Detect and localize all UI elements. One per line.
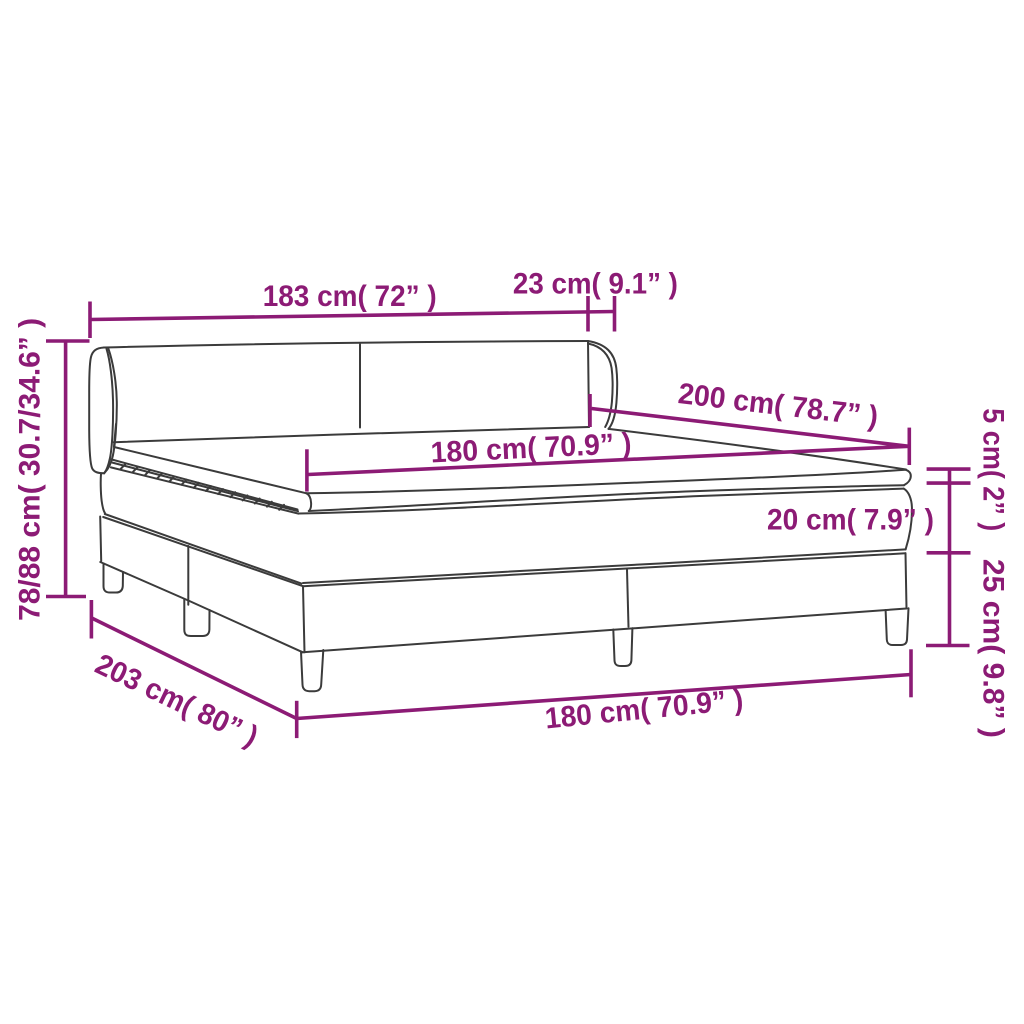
- svg-text:180 cm( 70.9” ): 180 cm( 70.9” ): [543, 683, 744, 735]
- svg-text:5 cm( 2” ): 5 cm( 2” ): [977, 408, 1010, 531]
- svg-text:183 cm( 72” ): 183 cm( 72” ): [263, 280, 437, 313]
- svg-text:20 cm( 7.9” ): 20 cm( 7.9” ): [767, 504, 934, 537]
- svg-text:200 cm( 78.7” ): 200 cm( 78.7” ): [676, 377, 879, 433]
- svg-text:78/88 cm( 30.7/34.6” ): 78/88 cm( 30.7/34.6” ): [14, 318, 47, 621]
- svg-text:23 cm( 9.1” ): 23 cm( 9.1” ): [513, 268, 678, 301]
- svg-text:180 cm( 70.9” ): 180 cm( 70.9” ): [430, 427, 632, 469]
- svg-text:25 cm( 9.8” ): 25 cm( 9.8” ): [977, 559, 1010, 738]
- svg-text:203 cm( 80” ): 203 cm( 80” ): [90, 648, 263, 754]
